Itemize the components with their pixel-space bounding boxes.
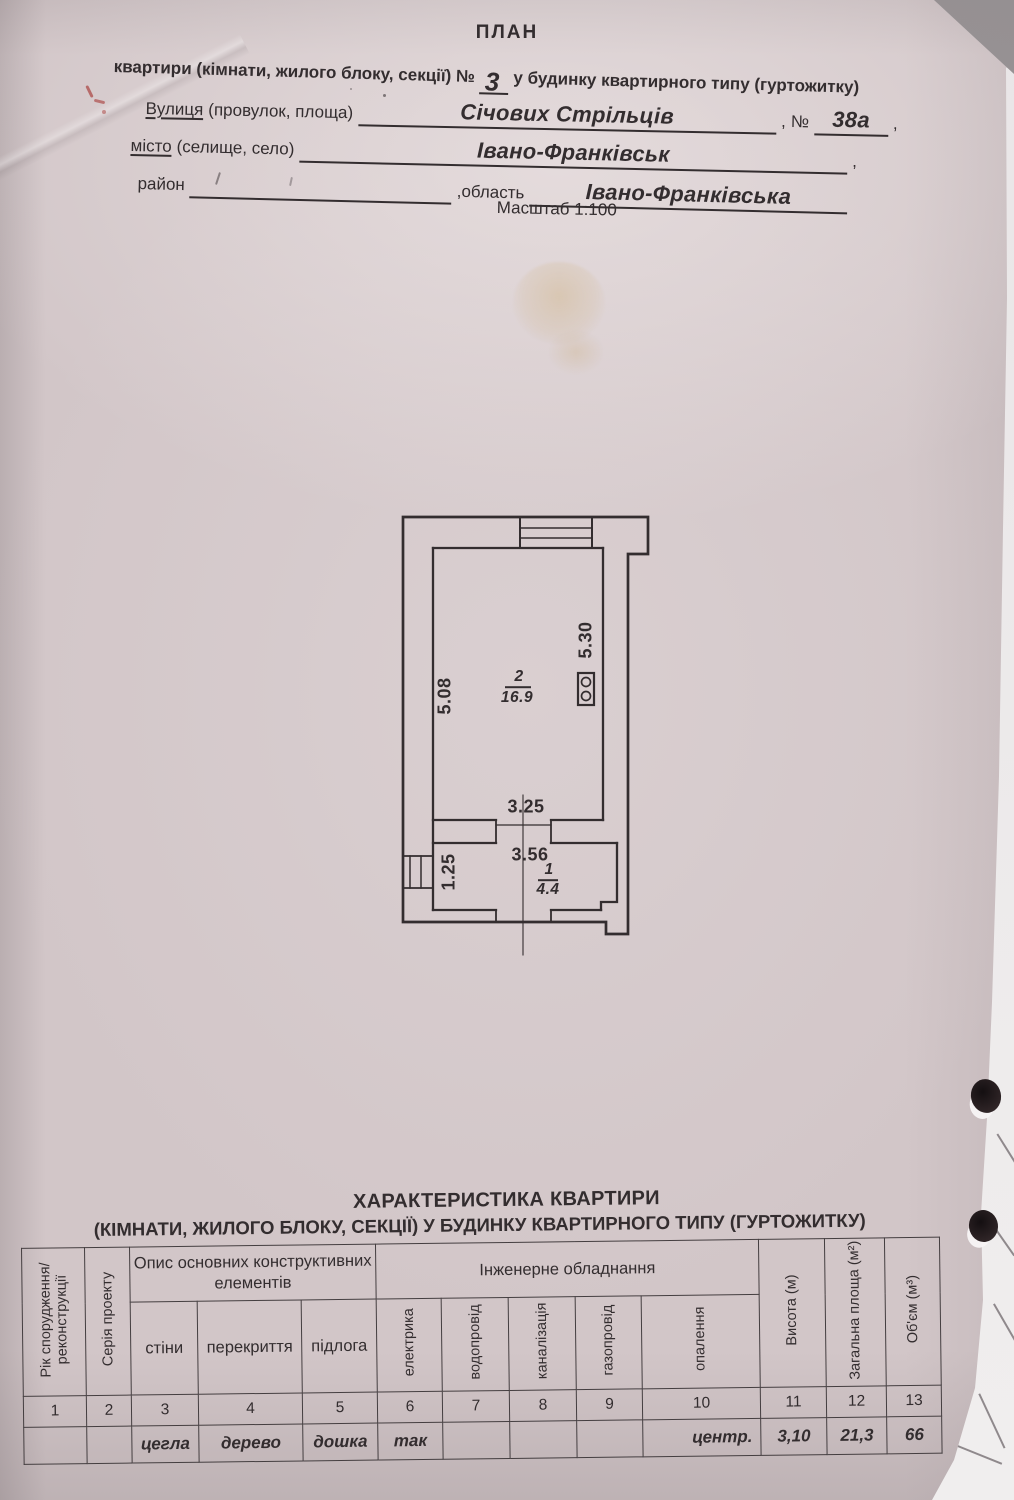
- value-height: 3,10: [761, 1418, 827, 1456]
- value-water: [443, 1421, 510, 1459]
- punch-hole: [967, 1208, 1000, 1244]
- street-field: Січових Стрільців: [358, 96, 777, 134]
- column-number: 1: [23, 1396, 86, 1428]
- room1-right-wall: [601, 843, 617, 910]
- city-line: місто(селище, село) Івано-Франківськ ,: [130, 129, 857, 175]
- floor-plan: 5.08 5.30 1.25 3.25 3.56 2 16.9 1 4.4: [395, 500, 665, 965]
- district-field: [190, 168, 453, 204]
- scale-label: Масштаб 1:100: [497, 198, 617, 221]
- column-number: 8: [509, 1390, 576, 1422]
- header-walls: стіни: [130, 1301, 198, 1395]
- scanned-sheet: ПЛАН квартири (кімнати, жилого блоку, се…: [0, 0, 1014, 1500]
- header-gas: газопровід: [575, 1296, 642, 1390]
- header-water: водопровід: [441, 1297, 509, 1391]
- header-heating: опалення: [641, 1294, 760, 1388]
- column-number: 12: [826, 1386, 886, 1418]
- underlying-sheet-line: [993, 1303, 1014, 1342]
- stove-burner-icon: [582, 678, 591, 687]
- subtitle-prefix: квартири (кімнати, жилого блоку, секції)…: [113, 57, 475, 90]
- column-number: 4: [198, 1393, 302, 1425]
- punch-hole: [968, 1076, 1004, 1115]
- floor-plan-drawing: [395, 500, 665, 965]
- column-number: 9: [576, 1389, 642, 1421]
- characteristics-table: Рік спорудження/ реконструкції Серія про…: [21, 1237, 943, 1465]
- window-jambs: [520, 517, 592, 548]
- value-year: [24, 1427, 87, 1465]
- value-overlap: дерево: [199, 1424, 303, 1462]
- value-sewerage: [510, 1421, 577, 1459]
- street-value: Січових Стрільців: [460, 99, 674, 129]
- comma: ,: [893, 114, 898, 137]
- header-height: Висота (м): [759, 1239, 827, 1388]
- window-bars: [520, 528, 592, 538]
- underlying-sheet-line: [997, 1133, 1014, 1168]
- column-number: 5: [302, 1392, 377, 1424]
- value-floor: дошка: [303, 1423, 378, 1461]
- underlying-sheet-line: [979, 1393, 1006, 1448]
- city-field: Івано-Франківськ: [299, 133, 848, 175]
- column-number: 2: [86, 1395, 131, 1427]
- city-value: Івано-Франківськ: [477, 138, 670, 168]
- red-pen-mark: [85, 85, 93, 98]
- column-number: 6: [377, 1391, 442, 1423]
- header-floor: підлога: [301, 1299, 377, 1393]
- dim-room1-depth: 1.25: [439, 853, 460, 890]
- header-series: Серія проекту: [85, 1247, 132, 1396]
- side-window-frame: [403, 856, 433, 888]
- district-line: район ,область Івано-Франківська: [137, 167, 847, 214]
- column-number: 11: [760, 1387, 826, 1419]
- subtitle-suffix: у будинку квартирного типу (гуртожитку): [513, 68, 859, 101]
- characteristics-section: ХАРАКТЕРИСТИКА КВАРТИРИ (КІМНАТИ, ЖИЛОГО…: [20, 1184, 941, 1465]
- header-total-area: Загальна площа (м²): [825, 1238, 887, 1387]
- header-construction-group: Опис основних конструктивних елементів: [130, 1244, 377, 1302]
- city-label: місто(селище, село): [130, 136, 294, 163]
- value-volume: 66: [887, 1416, 942, 1454]
- paper-stain: [513, 262, 605, 344]
- red-pen-mark: [102, 110, 106, 114]
- side-window-bars: [410, 856, 421, 888]
- stove-burner-icon: [582, 692, 591, 701]
- street-label: Вулиця(провулок, площа): [145, 99, 353, 126]
- page-title: ПЛАН: [0, 22, 1014, 44]
- ink-speck: [350, 88, 352, 90]
- value-total-area: 21,3: [827, 1417, 887, 1455]
- underlying-sheet-line: [993, 1226, 1014, 1257]
- dim-room1-width: 3.56: [511, 845, 548, 866]
- comma: ,: [781, 112, 786, 135]
- value-heating: центр.: [643, 1418, 762, 1456]
- column-number: 3: [131, 1394, 198, 1426]
- apartment-number: 3: [480, 71, 509, 95]
- dim-left-wall: 5.08: [435, 677, 456, 714]
- dim-opening: 3.25: [507, 797, 544, 818]
- building-number-field: 38а: [814, 105, 889, 136]
- room1-area: 4.4: [536, 881, 559, 899]
- comma: ,: [852, 152, 857, 175]
- value-series: [87, 1426, 132, 1464]
- value-walls: цегла: [132, 1425, 199, 1463]
- number-sign: №: [791, 112, 810, 135]
- red-pen-mark: [94, 99, 105, 105]
- column-number: 10: [642, 1387, 760, 1419]
- district-label: район: [137, 174, 185, 198]
- header-volume: Об'єм (м³): [885, 1237, 942, 1386]
- value-electricity: так: [378, 1422, 443, 1460]
- room2-area: 16.9: [501, 689, 533, 707]
- header-sewerage: каналізація: [508, 1297, 576, 1391]
- paper-stain: [548, 330, 604, 374]
- header-electricity: електрика: [376, 1298, 442, 1392]
- building-number: 38а: [832, 107, 870, 134]
- dim-right-wall: 5.30: [576, 621, 597, 658]
- header-overlap: перекриття: [197, 1300, 302, 1394]
- room2-fraction-line: [505, 686, 531, 688]
- column-number: 13: [886, 1385, 941, 1417]
- header-engineering-group: Інженерне обладнання: [376, 1239, 760, 1299]
- column-number: 7: [442, 1390, 509, 1422]
- underlying-sheet-line: [948, 1441, 1002, 1464]
- header-year: Рік спорудження/ реконструкції: [22, 1248, 87, 1397]
- value-gas: [577, 1420, 643, 1458]
- room1-number: 1: [544, 861, 553, 879]
- room2-number: 2: [514, 668, 523, 686]
